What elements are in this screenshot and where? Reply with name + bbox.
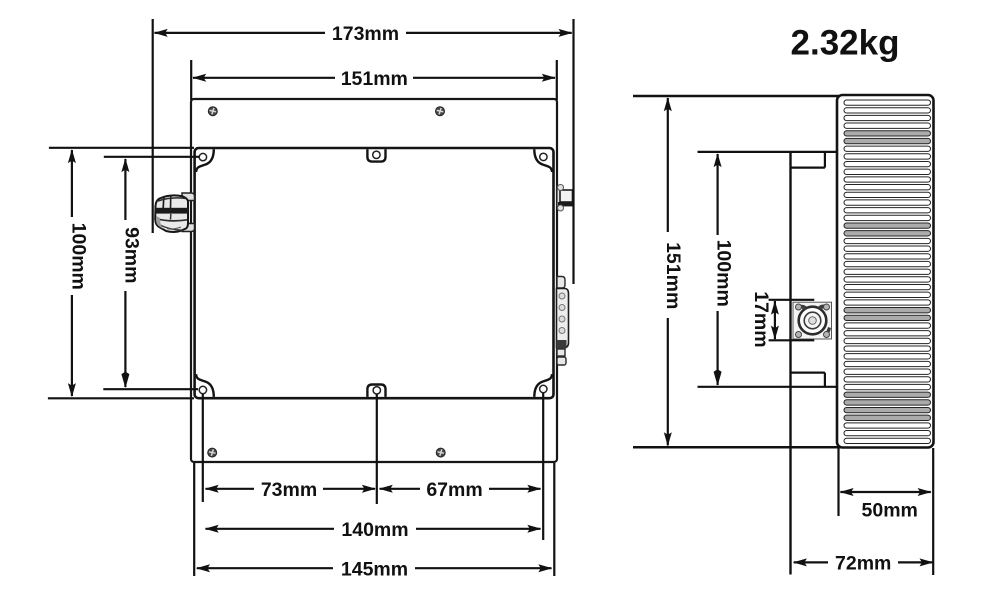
svg-text:50mm: 50mm: [862, 500, 918, 522]
svg-text:145mm: 145mm: [341, 558, 408, 580]
svg-text:100mm: 100mm: [67, 223, 89, 290]
svg-text:2.32kg: 2.32kg: [791, 24, 900, 63]
svg-text:73mm: 73mm: [261, 479, 317, 501]
svg-text:72mm: 72mm: [835, 553, 891, 575]
svg-text:93mm: 93mm: [121, 227, 143, 283]
svg-text:140mm: 140mm: [341, 519, 408, 541]
svg-text:151mm: 151mm: [341, 68, 408, 90]
svg-text:173mm: 173mm: [332, 23, 399, 45]
svg-text:151mm: 151mm: [662, 242, 684, 309]
svg-text:67mm: 67mm: [426, 479, 482, 501]
svg-text:100mm: 100mm: [712, 240, 734, 307]
svg-text:17mm: 17mm: [750, 291, 772, 347]
